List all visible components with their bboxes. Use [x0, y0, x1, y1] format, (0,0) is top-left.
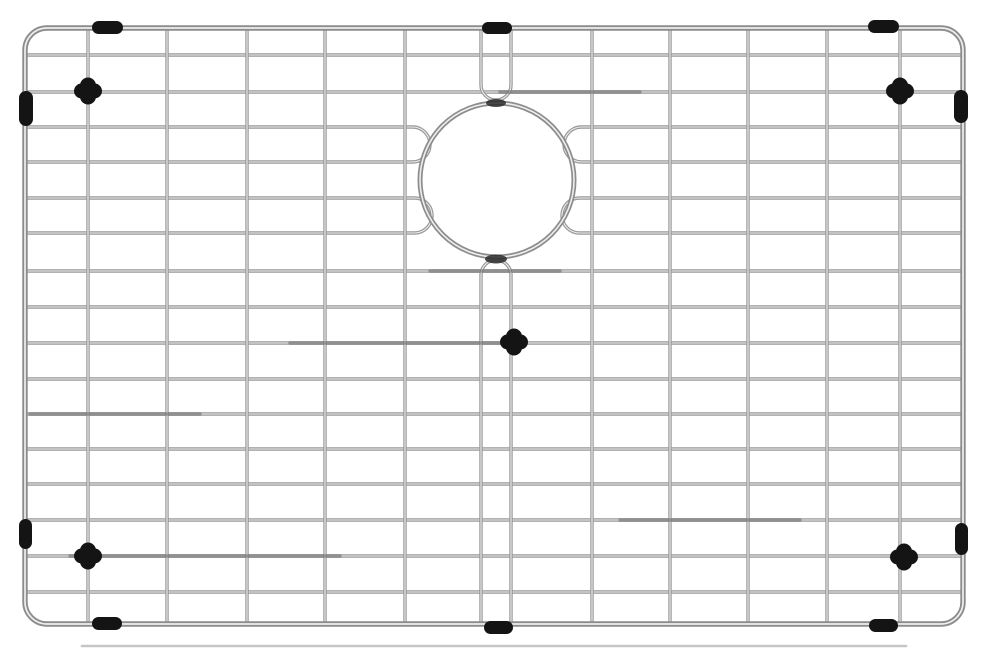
- rubber-bumper-bottom-center: [484, 621, 513, 634]
- vertical-hairpin-wire-bottom-highlight: [481, 260, 511, 624]
- rubber-bumper-bottom-left: [92, 617, 122, 630]
- weld-shadow: [485, 255, 507, 264]
- horizontal-hairpin-wire-left-body: [25, 127, 430, 162]
- rubber-clip-center: [500, 329, 528, 356]
- rubber-clip-center-lobe-vertical: [506, 329, 522, 356]
- vertical-hairpin-wire-bottom: [481, 260, 511, 624]
- rubber-bumper-top-left: [92, 21, 123, 34]
- rubber-clip-bottom-left: [74, 543, 102, 570]
- horizontal-hairpin-wire-left-body: [25, 198, 432, 233]
- vertical-hairpin-wire-top: [481, 28, 511, 100]
- horizontal-hairpin-wire-left-highlight: [25, 198, 432, 233]
- product-photo-sink-grid: [0, 0, 989, 654]
- horizontal-hairpin-wire-left: [25, 127, 430, 162]
- horizontal-hairpin-wire-right: [562, 198, 963, 233]
- vertical-hairpin-wire-bottom-body: [481, 260, 511, 624]
- vertical-hairpin-wire-top-body: [481, 28, 511, 100]
- sink-grid-photo: [0, 0, 989, 654]
- rubber-foot-left-bottom: [19, 519, 32, 549]
- rubber-clip-top-right-lobe-vertical: [892, 78, 908, 105]
- vertical-hairpin-wire-top-highlight: [481, 28, 511, 100]
- rubber-foot-right-bottom: [955, 523, 968, 555]
- rubber-clip-top-left-lobe-vertical: [80, 78, 96, 105]
- drain-ring-highlight: [420, 103, 574, 257]
- rubber-clip-bottom-left-lobe-vertical: [80, 543, 96, 570]
- horizontal-hairpin-wire-right-body: [564, 127, 963, 162]
- horizontal-hairpin-wire-left: [25, 198, 432, 233]
- drain-opening-ring: [420, 103, 574, 257]
- horizontal-hairpin-wire-right: [564, 127, 963, 162]
- rubber-bumper-bottom-right: [869, 619, 898, 632]
- horizontal-hairpin-wire-left-highlight: [25, 127, 430, 162]
- horizontal-hairpin-wire-right-highlight: [562, 198, 963, 233]
- weld-shadow: [486, 99, 506, 107]
- rubber-foot-left-top: [19, 91, 33, 126]
- rubber-clip-bottom-right-lobe-vertical: [896, 544, 912, 571]
- rubber-clip-top-right: [886, 78, 914, 105]
- rubber-clip-top-left: [74, 78, 102, 105]
- rubber-bumper-top-right: [868, 20, 899, 33]
- rubber-foot-right-top: [954, 90, 968, 123]
- horizontal-hairpin-wire-right-highlight: [564, 127, 963, 162]
- rubber-clip-bottom-right: [890, 544, 918, 571]
- horizontal-hairpin-wire-right-body: [562, 198, 963, 233]
- rubber-bumper-top-center: [482, 22, 512, 34]
